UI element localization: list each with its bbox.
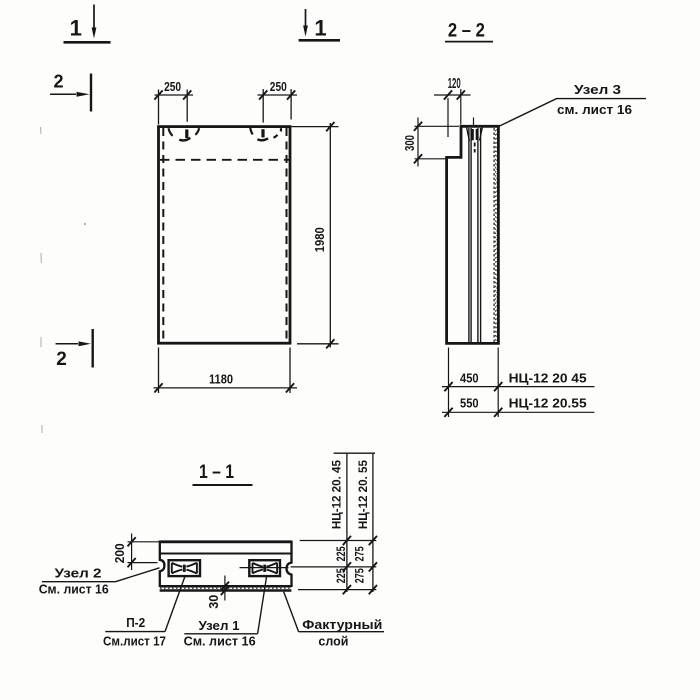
svg-text:275: 275 [353, 568, 367, 583]
svg-text:НЦ-12 20. 55: НЦ-12 20. 55 [356, 460, 370, 529]
svg-text:120: 120 [448, 76, 461, 92]
svg-text:2: 2 [56, 349, 67, 370]
svg-text:1 – 1: 1 – 1 [199, 462, 234, 483]
svg-text:см. лист 16: см. лист 16 [557, 102, 632, 117]
svg-text:30: 30 [206, 595, 221, 609]
svg-text:См. лист 16: См. лист 16 [39, 582, 109, 597]
svg-text:550: 550 [460, 396, 479, 411]
svg-text:слой: слой [318, 634, 348, 649]
svg-text:1: 1 [314, 16, 326, 41]
svg-text:2 – 2: 2 – 2 [448, 20, 485, 41]
svg-text:275: 275 [352, 546, 366, 561]
svg-text:200: 200 [112, 543, 127, 563]
svg-text:Узел 3: Узел 3 [574, 82, 621, 97]
svg-text:Фактурный: Фактурный [302, 617, 382, 632]
svg-text:225: 225 [334, 568, 348, 583]
svg-text:250: 250 [270, 79, 287, 94]
svg-text:НЦ-12 20. 45: НЦ-12 20. 45 [329, 460, 343, 529]
svg-text:1980: 1980 [312, 227, 327, 252]
svg-text:300: 300 [402, 135, 417, 151]
svg-text:1180: 1180 [209, 372, 233, 387]
svg-text:См. лист 16: См. лист 16 [184, 634, 256, 649]
svg-text:Узел 1: Узел 1 [199, 618, 240, 633]
svg-text:250: 250 [164, 79, 181, 94]
svg-text:П-2: П-2 [126, 615, 145, 630]
svg-text:225: 225 [334, 546, 348, 561]
svg-text:2: 2 [53, 72, 63, 92]
svg-text:НЦ-12 20.55: НЦ-12 20.55 [509, 396, 587, 411]
svg-text:Узел 2: Узел 2 [55, 565, 102, 580]
svg-text:450: 450 [460, 370, 479, 385]
svg-text:См.лист 17: См.лист 17 [103, 633, 166, 648]
svg-text:НЦ-12 20 45: НЦ-12 20 45 [509, 370, 587, 385]
svg-text:1: 1 [70, 16, 82, 41]
